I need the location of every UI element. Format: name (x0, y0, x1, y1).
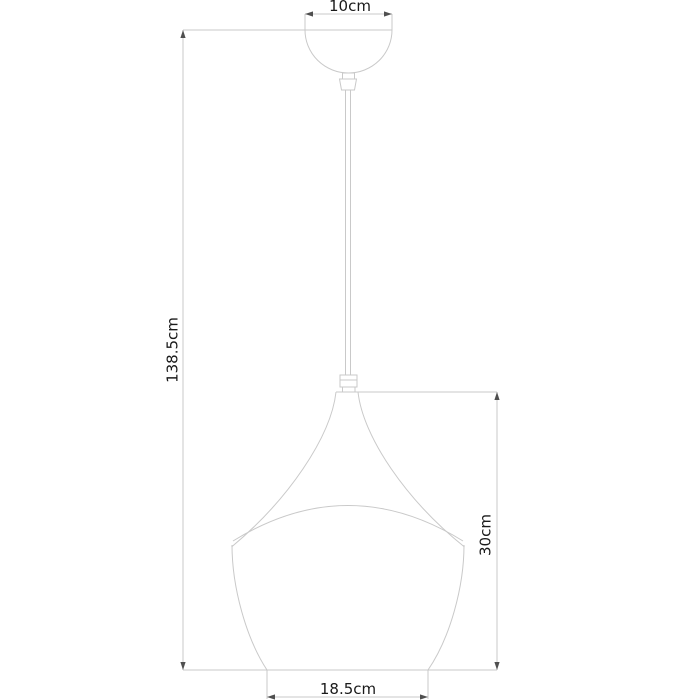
arrow-up-icon (180, 30, 185, 38)
canopy-cord-grip-body (340, 79, 357, 90)
arrow-left-icon (267, 694, 275, 699)
canopy-width-label: 10cm (329, 0, 371, 15)
shade-shoulder-arc (233, 506, 463, 542)
shade-flare-left (232, 392, 337, 547)
overall-height-label: 138.5cm (164, 317, 182, 383)
shade-bottom-width-label: 18.5cm (320, 680, 376, 698)
lamp-holder-neck (343, 387, 356, 392)
lamp-dimension-diagram: 10cm 138.5cm 30cm 18.5cm (0, 0, 700, 700)
lamp-holder-body (340, 375, 357, 387)
arrow-up-icon (494, 392, 499, 400)
shade-body-right (428, 545, 464, 670)
arrow-right-icon (384, 11, 392, 16)
canopy-cord-grip-top (343, 73, 355, 79)
arrow-down-icon (180, 662, 185, 670)
arrow-down-icon (494, 662, 499, 670)
dimension-drawing-canvas: 10cm 138.5cm 30cm 18.5cm (0, 0, 700, 700)
shade-flare-right (358, 392, 465, 547)
shade-body-left (232, 545, 267, 670)
shade-height-label: 30cm (477, 514, 495, 556)
ceiling-canopy-outline (305, 30, 392, 73)
arrow-left-icon (305, 11, 313, 16)
arrow-right-icon (420, 694, 428, 699)
